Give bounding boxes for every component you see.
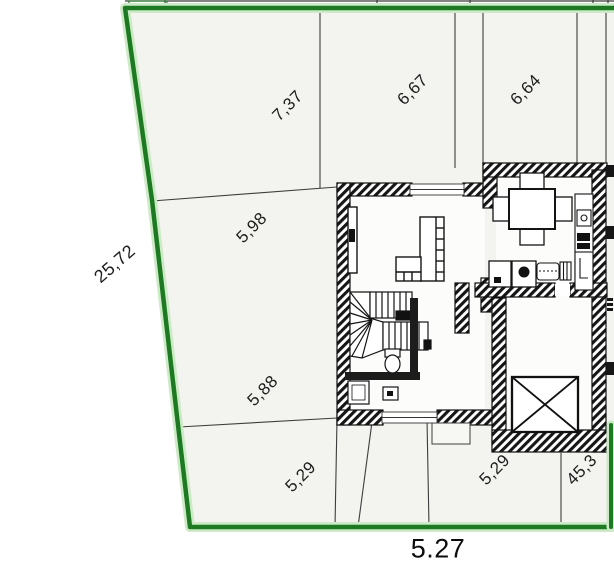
stove-icon xyxy=(489,261,536,287)
entrance-porch xyxy=(432,423,470,444)
sink-icon xyxy=(348,381,369,404)
toilet-icon xyxy=(385,349,400,373)
dishwasher-icon xyxy=(537,262,571,280)
site-plan-canvas: 25,72 7,37 6,67 6,64 5,98 5,88 5,29 5,29… xyxy=(0,0,614,578)
cabinet-icon xyxy=(348,207,357,273)
x-marked-area xyxy=(512,377,578,432)
dim-label-bottom-total: 5.27 xyxy=(411,534,466,565)
kitchen-counter xyxy=(575,194,593,290)
